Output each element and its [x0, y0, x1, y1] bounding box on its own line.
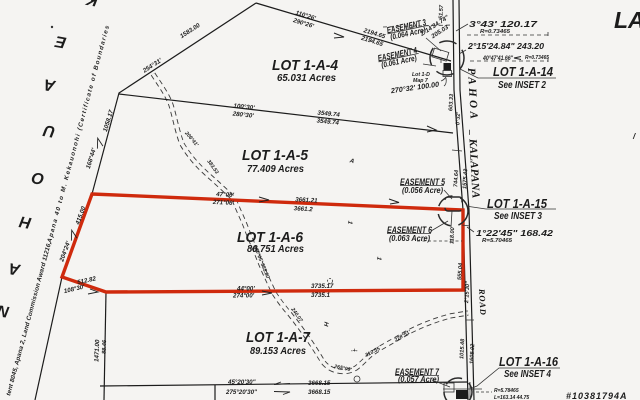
svg-text:LOT 1-A-16: LOT 1-A-16 — [499, 354, 559, 369]
svg-text:44°00': 44°00' — [236, 286, 255, 293]
svg-text:1015.48: 1015.48 — [459, 338, 466, 359]
svg-text:3°43' 120.17: 3°43' 120.17 — [469, 20, 538, 29]
svg-text:744.64: 744.64 — [453, 169, 460, 187]
svg-text:275°20'30": 275°20'30" — [225, 389, 257, 396]
svg-text:R=0.73465: R=0.73465 — [525, 55, 550, 61]
svg-text:LA: LA — [614, 7, 640, 33]
svg-text:R=0.73465: R=0.73465 — [480, 29, 511, 35]
svg-text:(0.063 Acre): (0.063 Acre) — [389, 234, 430, 243]
svg-text:1°22'45" 168.42: 1°22'45" 168.42 — [476, 229, 554, 238]
svg-text:0°32': 0°32' — [455, 111, 462, 125]
svg-text:65.031 Acres: 65.031 Acres — [277, 72, 336, 84]
svg-text:51.57: 51.57 — [438, 4, 445, 19]
svg-text:(0.057 Acre): (0.057 Acre) — [398, 375, 439, 384]
svg-text:L=163.14 44.75: L=163.14 44.75 — [494, 395, 529, 400]
svg-text:1608.02: 1608.02 — [469, 343, 476, 364]
svg-text:77.409 Acres: 77.409 Acres — [247, 163, 304, 175]
svg-text:1471.00: 1471.00 — [93, 339, 101, 362]
svg-text:3735.17: 3735.17 — [311, 283, 334, 290]
svg-text:-+-: -+- — [351, 348, 358, 354]
svg-text:#10381794A: #10381794A — [566, 391, 628, 400]
svg-text:–: – — [464, 129, 475, 139]
svg-text:LOT 1-A-5: LOT 1-A-5 — [242, 148, 309, 164]
svg-text:45°20'30": 45°20'30" — [227, 379, 256, 386]
svg-text:LOT 1-A-7: LOT 1-A-7 — [246, 330, 311, 346]
svg-text:(0.056 Acre): (0.056 Acre) — [402, 186, 443, 195]
svg-text:LOT 1-A-14: LOT 1-A-14 — [493, 64, 554, 79]
svg-text:118.00: 118.00 — [449, 226, 456, 244]
svg-text:ROAD: ROAD — [477, 288, 488, 316]
svg-text:3661.2: 3661.2 — [294, 205, 314, 213]
svg-text:3668.15: 3668.15 — [308, 380, 331, 387]
svg-text:R=5.70465: R=5.70465 — [482, 238, 513, 244]
svg-text:3661.21: 3661.21 — [295, 196, 318, 204]
svg-text:See INSET 3: See INSET 3 — [494, 211, 542, 222]
svg-text:2°15'30": 2°15'30" — [464, 281, 471, 304]
svg-text:R=5.78465: R=5.78465 — [494, 388, 519, 394]
svg-text:1575.43: 1575.43 — [462, 168, 469, 189]
svg-text:2°15'24.84" 243.20: 2°15'24.84" 243.20 — [467, 42, 545, 51]
svg-text:271°06': 271°06' — [212, 199, 235, 207]
svg-text:89.153 Acres: 89.153 Acres — [250, 345, 306, 357]
svg-text:274°00': 274°00' — [232, 293, 255, 300]
svg-text:603.33: 603.33 — [448, 93, 455, 111]
svg-text:88.46: 88.46 — [102, 339, 109, 354]
svg-text:3668.15: 3668.15 — [308, 389, 331, 396]
svg-text:See INSET 2: See INSET 2 — [498, 80, 546, 91]
svg-text:3735.1: 3735.1 — [311, 292, 330, 299]
svg-text:555.04: 555.04 — [457, 262, 464, 280]
svg-text:See INSET 4: See INSET 4 — [504, 369, 551, 380]
svg-text:47°06': 47°06' — [215, 191, 235, 199]
svg-text:N: N — [0, 301, 11, 320]
